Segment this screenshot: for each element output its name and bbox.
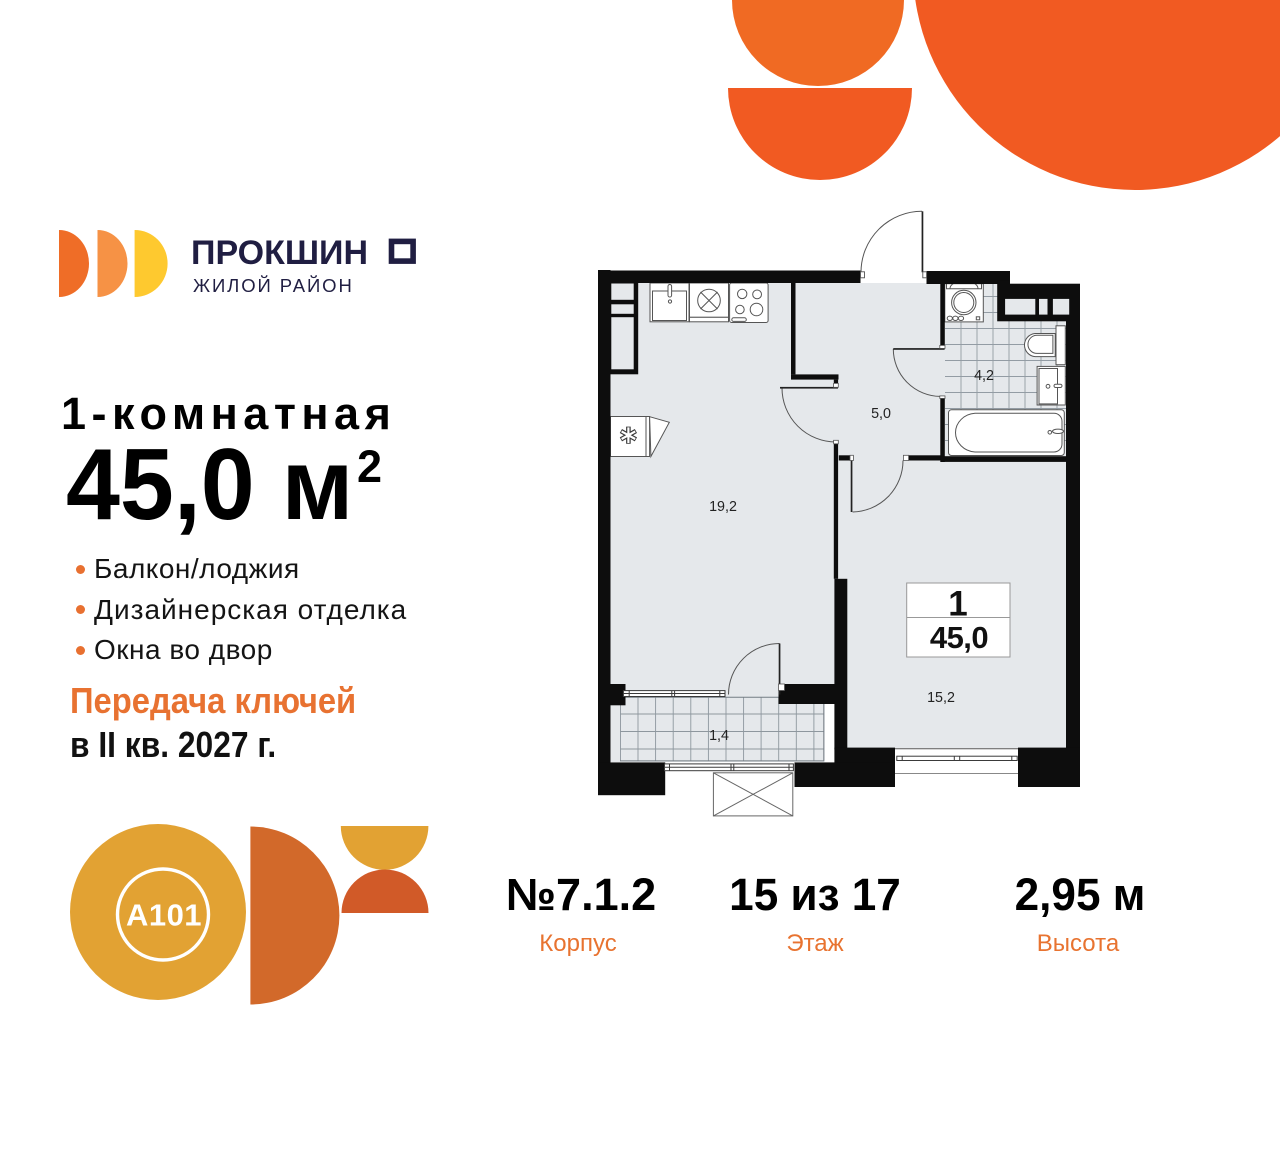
svg-text:45,0: 45,0 — [930, 620, 988, 655]
svg-text:1,4: 1,4 — [709, 728, 729, 744]
svg-text:А101: А101 — [126, 898, 202, 933]
svg-text:15,2: 15,2 — [927, 690, 955, 706]
svg-text:4,2: 4,2 — [974, 368, 994, 384]
svg-text:ЖИЛОЙ РАЙОН: ЖИЛОЙ РАЙОН — [193, 275, 354, 296]
svg-text:5,0: 5,0 — [871, 406, 891, 422]
svg-text:1: 1 — [948, 585, 967, 624]
svg-text:ПРОКШИН: ПРОКШИН — [191, 234, 368, 272]
svg-text:19,2: 19,2 — [709, 499, 737, 515]
